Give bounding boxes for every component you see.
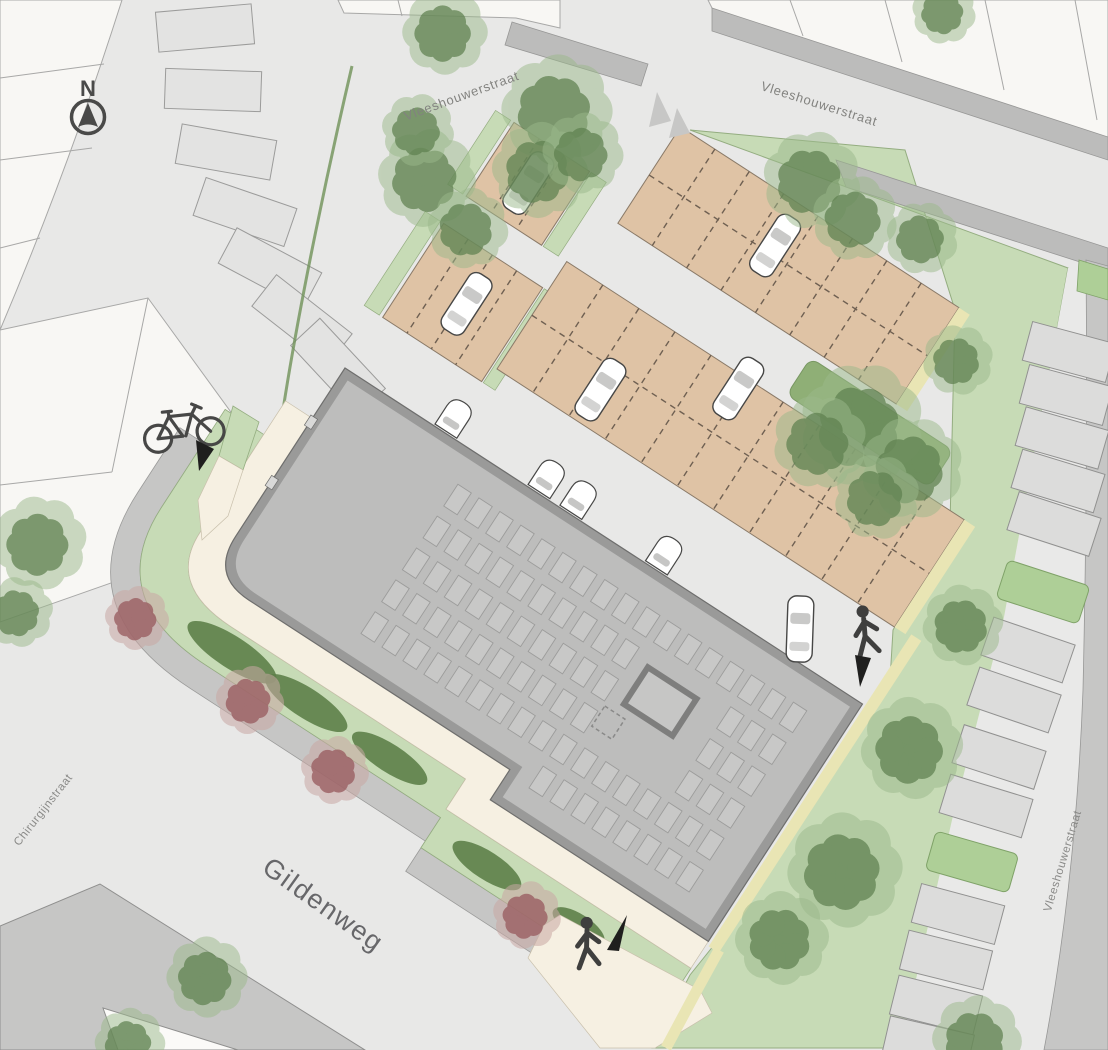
- compass-n-label: N: [80, 76, 96, 101]
- tree-red: [216, 666, 284, 734]
- tree-canopy: [503, 894, 548, 939]
- tree-blob: [909, 215, 929, 235]
- tree: [923, 585, 1004, 666]
- tree-blob: [319, 774, 338, 793]
- tree-canopy: [875, 716, 943, 784]
- tree-blob: [921, 6, 939, 24]
- tree-blob: [241, 705, 260, 724]
- site-plan-canvas: N Vleeshouwerstraat Vleeshouwerstraat Vl…: [0, 0, 1108, 1050]
- tree-blob: [449, 233, 472, 256]
- tree-canopy: [896, 215, 944, 263]
- tree-blob: [978, 1023, 1003, 1048]
- tree: [542, 112, 623, 193]
- tree-blob: [808, 843, 840, 875]
- tree-blob: [936, 622, 959, 645]
- tree: [166, 936, 247, 1017]
- tree-blob: [831, 194, 855, 218]
- tree-blob: [24, 550, 50, 576]
- tree-blob: [442, 10, 466, 34]
- tree-canopy: [554, 128, 608, 182]
- tree-blob: [414, 185, 441, 212]
- tree-blob: [135, 619, 153, 637]
- tree-blob: [127, 1024, 147, 1044]
- tree: [735, 891, 829, 985]
- tree-blob: [395, 130, 415, 150]
- tree-canopy: [114, 598, 156, 640]
- tree-canopy: [414, 5, 470, 61]
- tree-blob: [505, 915, 524, 934]
- tree-canopy: [825, 192, 881, 248]
- tree-canopy: [786, 413, 848, 475]
- tree-blob: [875, 734, 904, 763]
- tree-red: [105, 586, 169, 650]
- tree-blob: [195, 952, 218, 975]
- tree-blob: [778, 161, 805, 188]
- site-plan: N Vleeshouwerstraat Vleeshouwerstraat Vl…: [0, 0, 1108, 1050]
- tree-blob: [759, 910, 785, 936]
- tree-blob: [580, 155, 603, 178]
- tree-blob: [911, 445, 940, 474]
- parking-bay: [155, 4, 254, 52]
- tree-blob: [822, 430, 848, 456]
- tree-blob: [877, 495, 901, 519]
- car: [786, 596, 814, 663]
- tree-canopy: [6, 514, 68, 576]
- tree: [861, 697, 963, 799]
- tree-canopy: [178, 952, 231, 1005]
- parking-bay: [164, 68, 261, 111]
- tree-blob: [953, 363, 973, 383]
